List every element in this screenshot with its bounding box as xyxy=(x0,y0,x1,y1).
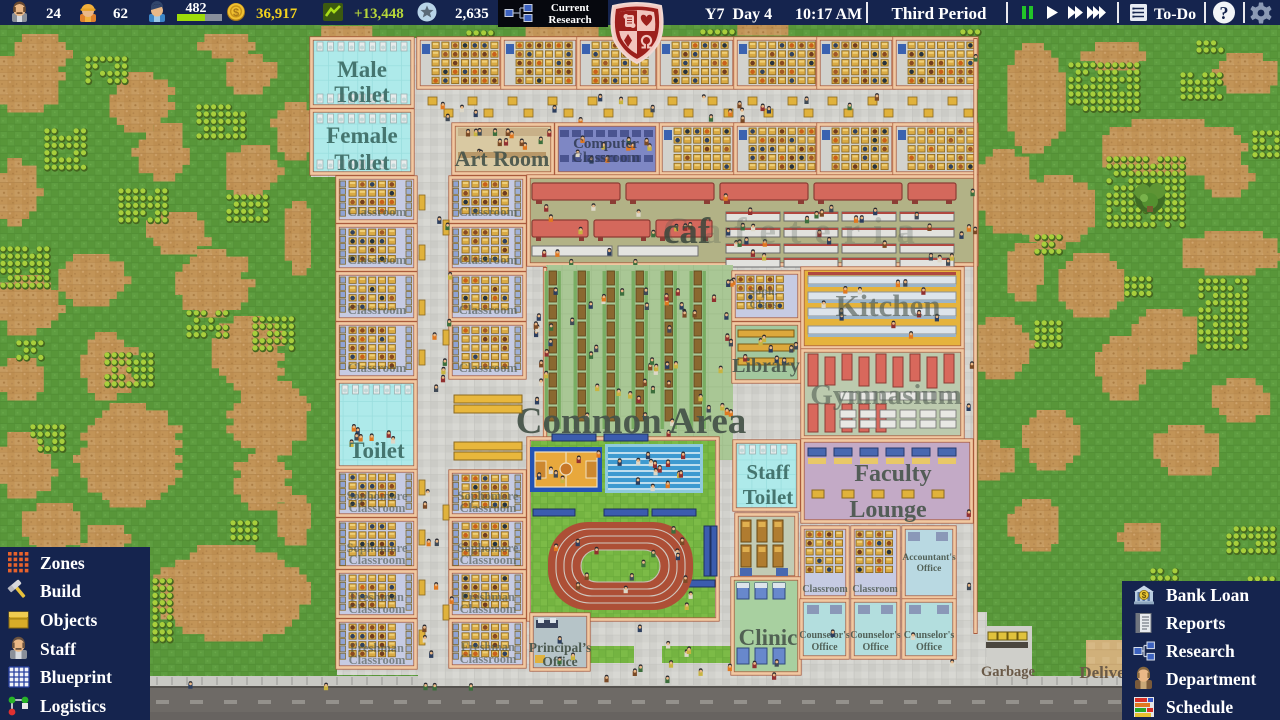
svg-text:Classroom: Classroom xyxy=(349,602,406,616)
svg-text:Classroom: Classroom xyxy=(572,150,641,166)
svg-text:Classroom: Classroom xyxy=(459,302,518,317)
svg-text:Classroom: Classroom xyxy=(460,652,517,666)
svg-text:Toilet: Toilet xyxy=(334,82,390,107)
svg-text:Classroom: Classroom xyxy=(459,252,518,267)
svg-text:Classroom: Classroom xyxy=(348,252,407,267)
svg-text:Toilet: Toilet xyxy=(349,438,405,463)
svg-text:Classroom: Classroom xyxy=(349,501,406,515)
svg-text:Library: Library xyxy=(732,355,800,377)
svg-text:Classroom: Classroom xyxy=(349,653,406,667)
svg-text:Art Room: Art Room xyxy=(455,146,550,171)
svg-text:Toilet: Toilet xyxy=(743,485,794,509)
svg-text:Classroom: Classroom xyxy=(459,204,518,219)
svg-text:Classroom: Classroom xyxy=(460,553,517,567)
svg-text:Classroom: Classroom xyxy=(459,360,518,375)
svg-text:Class: Class xyxy=(749,297,777,311)
svg-text:Toilet: Toilet xyxy=(334,150,390,175)
svg-text:Staff: Staff xyxy=(746,460,790,484)
svg-text:Classroom: Classroom xyxy=(460,501,517,515)
svg-text:Classroom: Classroom xyxy=(348,302,407,317)
svg-text:caf: caf xyxy=(663,211,711,252)
svg-text:Female: Female xyxy=(326,123,398,148)
svg-text:Classroom: Classroom xyxy=(348,204,407,219)
svg-text:Soph.: Soph. xyxy=(748,284,777,298)
svg-text:Classroom: Classroom xyxy=(348,360,407,375)
svg-text:Classroom: Classroom xyxy=(349,553,406,567)
svg-text:Gymnasium: Gymnasium xyxy=(810,379,961,411)
svg-text:Classroom: Classroom xyxy=(460,602,517,616)
svg-text:Clinic: Clinic xyxy=(739,625,798,650)
svg-text:Kitchen: Kitchen xyxy=(835,288,940,323)
